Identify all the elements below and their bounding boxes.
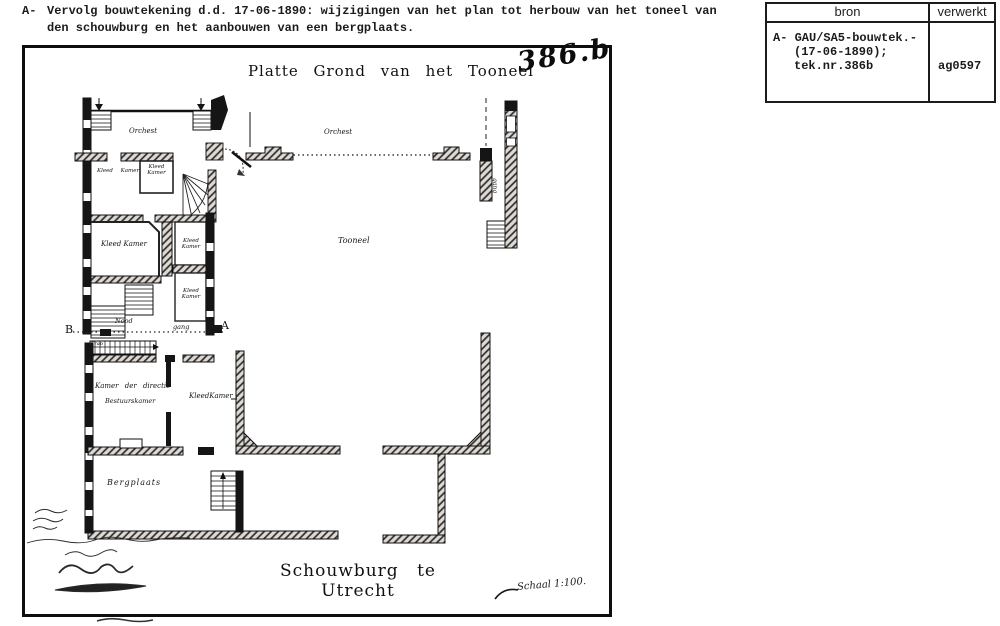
header-line-2: den schouwburg en het aanbouwen van een …	[47, 21, 414, 35]
room-label-kleedkamer-4: Kleed Kamer	[177, 238, 205, 251]
scanned-document-page: A- Vervolg bouwtekening d.d. 17-06-1890:…	[0, 0, 1000, 626]
stage-right-wall	[480, 98, 517, 248]
room-label-kleedkamer-2: Kleed Kamer	[143, 164, 170, 177]
signature-flourish	[55, 584, 146, 592]
wall-orchest-south	[75, 153, 173, 161]
column-header-verwerkt: verwerkt	[930, 4, 994, 19]
label-gang-vertical: gang	[490, 178, 497, 193]
wall-left-upper	[83, 98, 91, 334]
bron-line-3: tek.nr.386b	[767, 59, 928, 73]
floor-plan-drawing	[25, 48, 609, 614]
corridor-marker-a: A	[221, 320, 229, 333]
room-label-tooneel: Tooneel	[338, 236, 370, 245]
room-label-orchest-left: Orchest	[129, 127, 157, 135]
room-label-bestuurskamer: Bestuurskamer	[105, 398, 155, 405]
orchest-entrance-stairs	[91, 95, 228, 130]
plan-title: Platte Grond van het Tooneel	[241, 62, 541, 80]
handwritten-note	[27, 509, 190, 591]
column-header-bron: bron	[767, 4, 928, 19]
reference-table-header: bron verwerkt	[767, 4, 994, 23]
room-label-kleedkamer-1: Kleed Kamer	[97, 168, 139, 174]
winder-staircase	[183, 143, 223, 222]
room-label-kamer-directie: Kamer der directie	[95, 382, 170, 390]
orchestra-pit-edge	[246, 112, 470, 160]
room-label-kleedkamer-6: KleedKamer	[189, 392, 233, 400]
bergplaats-staircase	[211, 471, 243, 532]
verwerkt-value: ag0597	[930, 23, 994, 73]
corridor-label-gang: gang	[173, 324, 189, 331]
annex-walls	[88, 454, 445, 543]
plan-caption: Schouwburg te Utrecht	[238, 561, 478, 601]
drawing-sheet: Platte Grond van het Tooneel 386.b Orche…	[22, 45, 612, 617]
header-line-1: Vervolg bouwtekening d.d. 17-06-1890: wi…	[47, 4, 717, 18]
bron-line-2: (17-06-1890);	[767, 45, 928, 59]
reference-table: bron verwerkt A- GAU/SA5-bouwtek.- (17-0…	[765, 2, 996, 103]
bron-line-1: A- GAU/SA5-bouwtek.-	[767, 23, 928, 45]
room-label-kleedkamer-5: Kleed Kamer	[177, 288, 205, 301]
corridor-label-nood: Nood	[115, 318, 133, 325]
stage-rear-left-wall	[236, 351, 340, 454]
room-label-orchest-pit: Orchest	[324, 128, 352, 136]
bron-cell: A- GAU/SA5-bouwtek.- (17-06-1890); tek.n…	[767, 23, 930, 103]
stray-pen-mark	[95, 616, 155, 625]
verwerkt-cell: ag0597	[930, 23, 994, 103]
stage-rear-right-wall	[383, 333, 490, 454]
room-label-bergplaats: Bergplaats	[107, 478, 161, 487]
scale-flourish	[495, 589, 518, 599]
label-trap: Trap	[91, 342, 103, 348]
room-label-kleedkamer-3: Kleed Kamer	[101, 240, 147, 248]
reference-table-row: A- GAU/SA5-bouwtek.- (17-06-1890); tek.n…	[767, 23, 994, 103]
annotation-letter: A-	[22, 4, 36, 18]
corridor-marker-b: B	[65, 324, 73, 337]
